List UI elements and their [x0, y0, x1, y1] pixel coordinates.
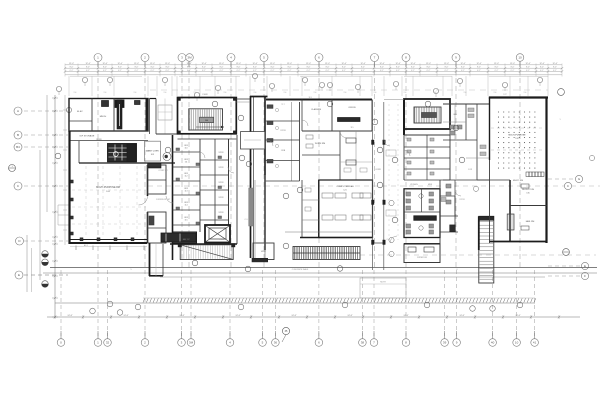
- svg-text:MAINT CORR: MAINT CORR: [146, 150, 159, 153]
- svg-text:6'-2": 6'-2": [553, 70, 557, 72]
- svg-text:12'-4": 12'-4": [252, 63, 257, 65]
- svg-text:9'-6: 9'-6: [284, 92, 287, 94]
- svg-text:3M: 3M: [189, 341, 194, 345]
- svg-text:24'-8": 24'-8": [459, 315, 464, 317]
- svg-text:40: 40: [491, 341, 495, 345]
- svg-text:9'-6: 9'-6: [104, 92, 107, 94]
- svg-text:6'-2": 6'-2": [271, 70, 275, 72]
- svg-text:12'-4": 12'-4": [395, 63, 400, 65]
- svg-text:CORR: CORR: [375, 169, 381, 171]
- svg-text:8'-0": 8'-0": [271, 67, 275, 69]
- svg-text:6'-2": 6'-2": [86, 70, 90, 72]
- svg-text:COR: COR: [468, 169, 473, 171]
- svg-text:STOR: STOR: [219, 212, 225, 214]
- svg-text:12'-4": 12'-4": [270, 63, 275, 65]
- svg-text:103: 103: [151, 154, 154, 156]
- svg-text:IDF STORAGE: IDF STORAGE: [80, 135, 95, 138]
- svg-text:6'-2": 6'-2": [380, 70, 384, 72]
- svg-text:8'-0": 8'-0": [307, 67, 311, 69]
- svg-text:24'-8": 24'-8": [235, 315, 240, 317]
- svg-text:6: 6: [456, 269, 457, 271]
- svg-text:9'-6: 9'-6: [464, 92, 467, 94]
- svg-text:ELEV: ELEV: [220, 239, 226, 241]
- svg-text:B: B: [17, 133, 19, 137]
- svg-text:6'-2": 6'-2": [253, 70, 257, 72]
- svg-text:112: 112: [184, 176, 187, 178]
- svg-text:MULTI-PURPOSE RM: MULTI-PURPOSE RM: [96, 186, 120, 189]
- svg-text:41: 41: [533, 341, 537, 345]
- svg-text:12'-4": 12'-4": [165, 63, 170, 65]
- svg-text:8'-0": 8'-0": [70, 67, 74, 69]
- svg-text:MULTI RM: MULTI RM: [513, 180, 523, 182]
- svg-text:8'-0": 8'-0": [427, 67, 431, 69]
- svg-text:8'-0": 8'-0": [445, 67, 449, 69]
- svg-text:12'-4": 12'-4": [117, 63, 122, 65]
- svg-text:8'-0": 8'-0": [526, 67, 530, 69]
- svg-text:NOTE: NOTE: [380, 281, 386, 283]
- svg-text:CONCRETE WALK: CONCRETE WALK: [292, 268, 309, 271]
- svg-text:CLASSRM: CLASSRM: [311, 108, 321, 111]
- svg-text:MAIL RM: MAIL RM: [526, 220, 535, 223]
- svg-text:9'-6: 9'-6: [404, 92, 407, 94]
- svg-text:9'-6: 9'-6: [134, 92, 137, 94]
- svg-text:12'-4": 12'-4": [444, 63, 449, 65]
- svg-text:12'-4": 12'-4": [476, 63, 481, 65]
- svg-text:STOR: STOR: [219, 197, 225, 199]
- svg-text:8'-0": 8'-0": [118, 67, 122, 69]
- svg-text:E: E: [18, 273, 20, 277]
- svg-text:9'-6: 9'-6: [434, 92, 437, 94]
- svg-text:6'-2": 6'-2": [187, 70, 191, 72]
- svg-text:JAN: JAN: [453, 113, 457, 116]
- svg-text:6'-2": 6'-2": [288, 70, 292, 72]
- svg-text:C-2: C-2: [386, 239, 389, 241]
- svg-text:6'-2": 6'-2": [526, 70, 530, 72]
- svg-text:MEN: MEN: [428, 184, 433, 186]
- svg-text:6'-2": 6'-2": [342, 70, 346, 72]
- svg-text:C-1: C-1: [244, 219, 247, 221]
- svg-text:12'-4": 12'-4": [236, 63, 241, 65]
- svg-text:8'-0": 8'-0": [553, 67, 557, 69]
- svg-text:STOR: STOR: [459, 199, 465, 201]
- svg-text:8'-0": 8'-0": [511, 67, 515, 69]
- svg-text:F: F: [584, 274, 586, 278]
- svg-text:127: 127: [503, 94, 506, 96]
- svg-text:12'-4": 12'-4": [85, 63, 90, 65]
- svg-text:6'-2": 6'-2": [326, 70, 330, 72]
- svg-text:6'-2": 6'-2": [445, 70, 449, 72]
- svg-text:10: 10: [518, 56, 522, 60]
- svg-text:114: 114: [184, 205, 187, 207]
- svg-text:12'-4": 12'-4": [494, 63, 499, 65]
- svg-text:MULTI-PURPOSE: MULTI-PURPOSE: [509, 135, 527, 137]
- svg-text:24'-8": 24'-8": [179, 315, 184, 317]
- svg-text:24'-8": 24'-8": [403, 315, 408, 317]
- svg-text:6'-2": 6'-2": [511, 70, 515, 72]
- svg-text:39: 39: [443, 341, 447, 345]
- svg-text:24'-8": 24'-8": [67, 315, 72, 317]
- svg-text:36: 36: [274, 341, 278, 345]
- svg-text:STAIR: STAIR: [202, 93, 208, 96]
- svg-text:B4: B4: [16, 145, 20, 149]
- svg-text:6'-2": 6'-2": [135, 70, 139, 72]
- svg-text:8'-0": 8'-0": [288, 67, 292, 69]
- svg-text:OFFICE: OFFICE: [348, 107, 356, 109]
- svg-text:6'-2": 6'-2": [151, 70, 155, 72]
- svg-text:8'-0": 8'-0": [166, 67, 170, 69]
- svg-text:8'-0": 8'-0": [253, 67, 257, 69]
- svg-text:12'-4": 12'-4": [426, 63, 431, 65]
- svg-text:6'-2": 6'-2": [220, 70, 224, 72]
- svg-text:SERV: SERV: [96, 139, 102, 141]
- svg-text:9'-6: 9'-6: [494, 92, 497, 94]
- svg-text:8'-0": 8'-0": [342, 67, 346, 69]
- svg-text:6'-2": 6'-2": [396, 70, 400, 72]
- svg-text:MECH: MECH: [100, 116, 107, 118]
- svg-text:24'-8": 24'-8": [347, 315, 352, 317]
- svg-text:6'-2": 6'-2": [307, 70, 311, 72]
- svg-text:6'-2": 6'-2": [461, 70, 465, 72]
- svg-text:12'-4": 12'-4": [287, 63, 292, 65]
- svg-text:6'-2": 6'-2": [118, 70, 122, 72]
- svg-text:8'-0": 8'-0": [220, 67, 224, 69]
- svg-text:12'-4": 12'-4": [525, 63, 530, 65]
- svg-text:24'-8": 24'-8": [515, 315, 520, 317]
- svg-text:10: 10: [515, 341, 519, 345]
- svg-text:12'-4": 12'-4": [539, 63, 544, 65]
- svg-text:8'-0": 8'-0": [361, 67, 365, 69]
- svg-text:8'-0": 8'-0": [477, 67, 481, 69]
- svg-text:STOR: STOR: [280, 130, 286, 132]
- svg-text:110: 110: [184, 148, 187, 150]
- svg-text:38: 38: [361, 341, 365, 345]
- svg-text:9'-6: 9'-6: [524, 92, 527, 94]
- svg-text:5: 5: [130, 269, 131, 271]
- svg-text:12'-4": 12'-4": [69, 63, 74, 65]
- svg-text:9'-6: 9'-6: [254, 92, 257, 94]
- svg-text:8'-0": 8'-0": [237, 67, 241, 69]
- svg-text:9'-6: 9'-6: [344, 92, 347, 94]
- svg-text:131B: 131B: [281, 150, 286, 152]
- svg-text:8'-0": 8'-0": [86, 67, 90, 69]
- svg-text:9'-6: 9'-6: [224, 92, 227, 94]
- svg-text:113: 113: [308, 97, 311, 99]
- svg-text:VEST: VEST: [261, 251, 267, 253]
- svg-text:CORR 102: CORR 102: [158, 170, 167, 172]
- svg-text:6'-2": 6'-2": [411, 70, 415, 72]
- svg-text:6'-2": 6'-2": [103, 70, 107, 72]
- svg-text:6'-2": 6'-2": [70, 70, 74, 72]
- svg-text:12'-4": 12'-4": [150, 63, 155, 65]
- svg-text:1: 1: [559, 119, 560, 121]
- svg-text:24'-8": 24'-8": [291, 315, 296, 317]
- svg-text:A3.1: A3.1: [84, 244, 88, 247]
- svg-text:8'-0": 8'-0": [396, 67, 400, 69]
- svg-text:8'-0": 8'-0": [151, 67, 155, 69]
- svg-text:6'-2": 6'-2": [495, 70, 499, 72]
- svg-text:6'-2": 6'-2": [166, 70, 170, 72]
- svg-text:12'-4": 12'-4": [219, 63, 224, 65]
- svg-text:8'-0": 8'-0": [495, 67, 499, 69]
- svg-text:COMPUTER LAB: COMPUTER LAB: [336, 185, 354, 188]
- svg-text:6'-2": 6'-2": [202, 70, 206, 72]
- svg-text:9'-6: 9'-6: [314, 92, 317, 94]
- svg-text:STOR: STOR: [219, 182, 225, 184]
- svg-text:32: 32: [106, 341, 110, 345]
- svg-text:3M: 3M: [187, 56, 192, 60]
- svg-text:12'-4": 12'-4": [325, 63, 330, 65]
- svg-text:6'-2": 6'-2": [361, 70, 365, 72]
- svg-text:9'-6: 9'-6: [194, 92, 197, 94]
- svg-text:12'-4": 12'-4": [102, 63, 107, 65]
- svg-text:111: 111: [185, 162, 188, 164]
- svg-text:115: 115: [184, 220, 187, 222]
- svg-text:115: 115: [350, 127, 353, 129]
- svg-text:CORRIDOR 1ST: CORRIDOR 1ST: [156, 199, 171, 201]
- svg-text:JAN 117: JAN 117: [182, 238, 189, 241]
- svg-text:8'-0": 8'-0": [411, 67, 415, 69]
- svg-text:12'-4": 12'-4": [360, 63, 365, 65]
- svg-text:8'-0": 8'-0": [326, 67, 330, 69]
- svg-text:8'-0": 8'-0": [103, 67, 107, 69]
- svg-text:8'-0": 8'-0": [540, 67, 544, 69]
- svg-text:6'-2": 6'-2": [237, 70, 241, 72]
- svg-text:12'-4": 12'-4": [134, 63, 139, 65]
- svg-text:STOR 131: STOR 131: [417, 257, 427, 259]
- svg-text:8'-0": 8'-0": [380, 67, 384, 69]
- svg-text:12'-4": 12'-4": [341, 63, 346, 65]
- svg-text:ELEC: ELEC: [77, 111, 83, 113]
- svg-text:12'-4": 12'-4": [379, 63, 384, 65]
- svg-text:STOR: STOR: [219, 152, 225, 154]
- svg-text:STOR: STOR: [219, 167, 225, 169]
- svg-text:6'-2": 6'-2": [427, 70, 431, 72]
- svg-text:6'-2": 6'-2": [477, 70, 481, 72]
- svg-text:8'-0": 8'-0": [135, 67, 139, 69]
- svg-text:8'-0": 8'-0": [461, 67, 465, 69]
- svg-text:WORK RM: WORK RM: [315, 143, 326, 145]
- svg-text:A: A: [17, 109, 19, 113]
- svg-text:12'-4": 12'-4": [201, 63, 206, 65]
- svg-text:12'-4": 12'-4": [552, 63, 557, 65]
- svg-text:RECEPTION: RECEPTION: [522, 189, 535, 191]
- svg-text:12'-4": 12'-4": [410, 63, 415, 65]
- svg-text:9'-6: 9'-6: [374, 92, 377, 94]
- svg-text:113: 113: [184, 191, 187, 193]
- svg-text:9'-6: 9'-6: [74, 92, 77, 94]
- svg-text:126: 126: [515, 138, 518, 140]
- svg-text:24'-8": 24'-8": [123, 315, 128, 317]
- svg-text:WOMEN: WOMEN: [410, 184, 418, 186]
- svg-text:12'-4": 12'-4": [460, 63, 465, 65]
- svg-text:8'-0": 8'-0": [202, 67, 206, 69]
- svg-text:6'-2": 6'-2": [540, 70, 544, 72]
- svg-text:12'-4": 12'-4": [510, 63, 515, 65]
- svg-text:12'-4": 12'-4": [306, 63, 311, 65]
- svg-text:9'-6: 9'-6: [164, 92, 167, 94]
